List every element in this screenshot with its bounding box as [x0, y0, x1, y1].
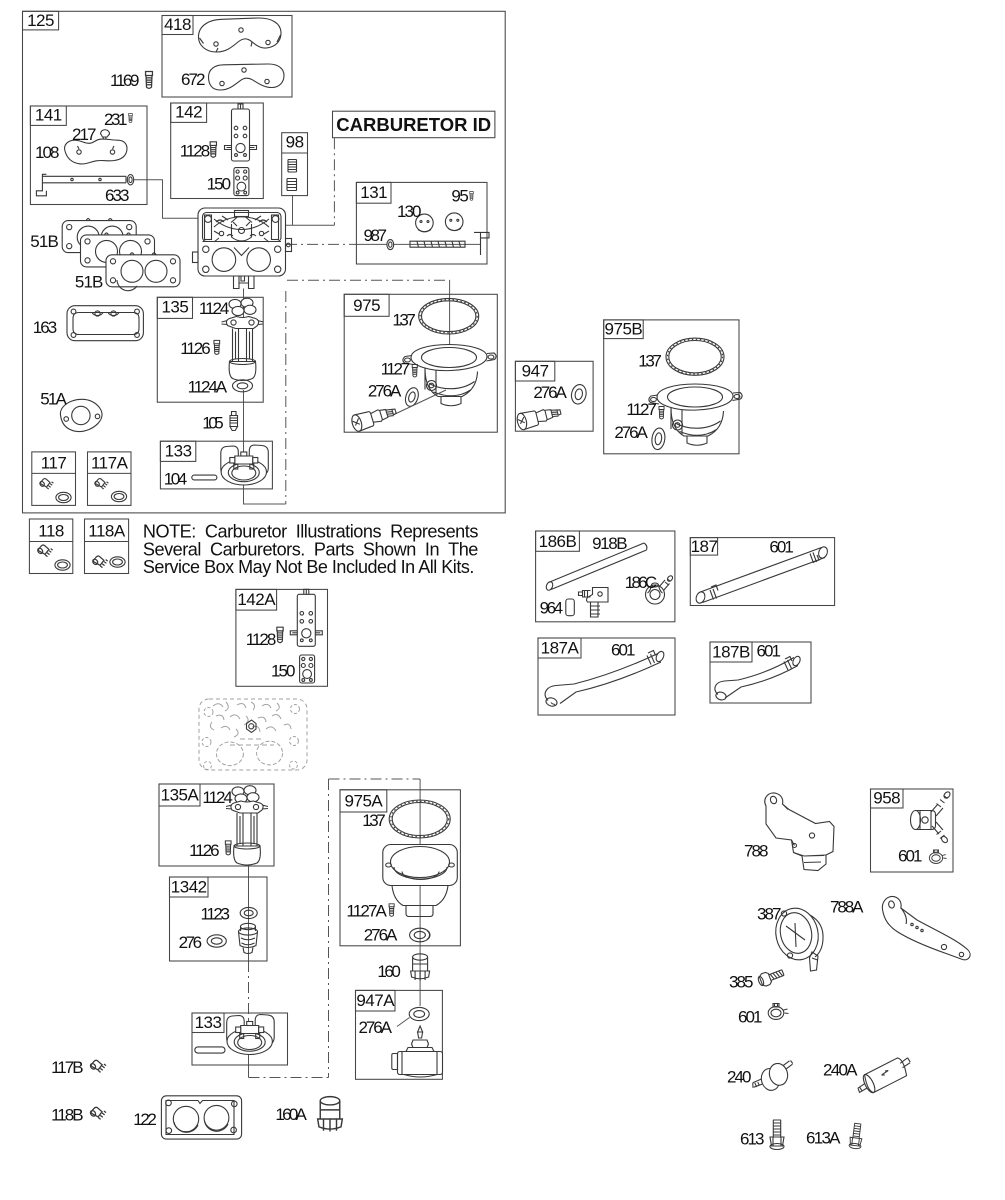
- svg-text:163: 163: [33, 318, 57, 337]
- svg-text:1127A: 1127A: [346, 902, 387, 921]
- svg-text:987: 987: [364, 226, 387, 245]
- svg-text:918B: 918B: [592, 534, 627, 553]
- svg-text:51A: 51A: [40, 390, 67, 409]
- svg-text:276A: 276A: [533, 383, 567, 402]
- svg-text:788A: 788A: [830, 898, 864, 917]
- svg-text:387: 387: [757, 905, 781, 924]
- svg-text:142A: 142A: [237, 590, 276, 609]
- svg-text:1127: 1127: [626, 400, 656, 419]
- svg-text:118: 118: [38, 522, 64, 541]
- svg-text:788: 788: [744, 842, 768, 861]
- svg-text:150: 150: [271, 662, 295, 681]
- svg-text:975: 975: [353, 296, 380, 315]
- svg-text:186B: 186B: [539, 532, 577, 551]
- svg-text:160: 160: [377, 962, 400, 981]
- svg-text:Service Box May Not Be Include: Service Box May Not Be Included In All K…: [143, 556, 474, 577]
- svg-text:975B: 975B: [605, 320, 643, 339]
- svg-text:958: 958: [873, 789, 900, 808]
- svg-text:105: 105: [202, 413, 223, 432]
- svg-text:276: 276: [179, 933, 202, 952]
- svg-text:141: 141: [35, 106, 62, 125]
- svg-text:137: 137: [392, 311, 415, 330]
- svg-text:133: 133: [165, 442, 192, 461]
- svg-text:217: 217: [72, 125, 96, 144]
- svg-text:117: 117: [41, 453, 67, 472]
- svg-text:276A: 276A: [364, 925, 398, 944]
- svg-text:142: 142: [175, 103, 202, 122]
- svg-text:187: 187: [691, 537, 718, 556]
- svg-text:601: 601: [611, 641, 635, 660]
- svg-text:1123: 1123: [201, 905, 230, 924]
- svg-text:947A: 947A: [356, 991, 395, 1010]
- svg-text:1342: 1342: [171, 877, 207, 896]
- svg-text:51B: 51B: [75, 272, 103, 291]
- svg-text:601: 601: [738, 1008, 762, 1027]
- svg-text:1124: 1124: [199, 299, 229, 318]
- svg-text:1128: 1128: [246, 630, 276, 649]
- svg-text:276A: 276A: [614, 423, 648, 442]
- svg-text:276A: 276A: [368, 382, 402, 401]
- svg-text:98: 98: [286, 133, 304, 152]
- svg-text:51B: 51B: [30, 232, 58, 251]
- svg-text:137: 137: [638, 352, 661, 371]
- svg-text:231: 231: [104, 110, 127, 129]
- svg-text:122: 122: [133, 1110, 156, 1129]
- svg-text:135: 135: [161, 298, 188, 317]
- svg-text:1128: 1128: [180, 142, 210, 161]
- svg-text:117B: 117B: [51, 1058, 83, 1077]
- svg-text:613A: 613A: [806, 1129, 841, 1148]
- svg-text:CARBURETOR ID: CARBURETOR ID: [336, 114, 491, 135]
- svg-text:601: 601: [769, 538, 793, 557]
- svg-text:118A: 118A: [88, 522, 126, 541]
- svg-text:160A: 160A: [275, 1105, 307, 1124]
- svg-text:240A: 240A: [823, 1061, 858, 1080]
- svg-text:601: 601: [757, 642, 781, 661]
- svg-text:95: 95: [451, 187, 468, 206]
- svg-text:947: 947: [522, 362, 549, 381]
- svg-text:117A: 117A: [91, 453, 129, 472]
- svg-text:1126: 1126: [180, 339, 210, 358]
- svg-text:150: 150: [207, 175, 231, 194]
- svg-text:125: 125: [27, 11, 54, 30]
- svg-text:975A: 975A: [345, 791, 384, 810]
- svg-text:240: 240: [727, 1068, 751, 1087]
- svg-text:672: 672: [181, 70, 205, 89]
- svg-text:130: 130: [397, 202, 421, 221]
- svg-text:187A: 187A: [541, 638, 580, 657]
- svg-text:633: 633: [105, 186, 129, 205]
- svg-text:601: 601: [898, 847, 922, 866]
- svg-text:385: 385: [729, 973, 753, 992]
- svg-text:133: 133: [195, 1013, 222, 1032]
- svg-text:1124A: 1124A: [188, 378, 228, 397]
- svg-text:108: 108: [35, 143, 59, 162]
- svg-text:276A: 276A: [359, 1018, 393, 1037]
- svg-text:137: 137: [362, 811, 385, 830]
- svg-text:131: 131: [360, 183, 387, 202]
- svg-text:1124: 1124: [202, 788, 232, 807]
- svg-text:135A: 135A: [161, 786, 200, 805]
- svg-text:1126: 1126: [189, 841, 219, 860]
- svg-text:104: 104: [164, 469, 187, 488]
- svg-text:186C: 186C: [625, 573, 657, 592]
- svg-text:964: 964: [540, 598, 563, 617]
- svg-text:187B: 187B: [712, 642, 750, 661]
- svg-text:613: 613: [740, 1130, 764, 1149]
- svg-text:1127: 1127: [381, 360, 410, 379]
- svg-text:118B: 118B: [51, 1106, 83, 1125]
- svg-text:418: 418: [164, 15, 191, 34]
- svg-text:1169: 1169: [110, 71, 139, 90]
